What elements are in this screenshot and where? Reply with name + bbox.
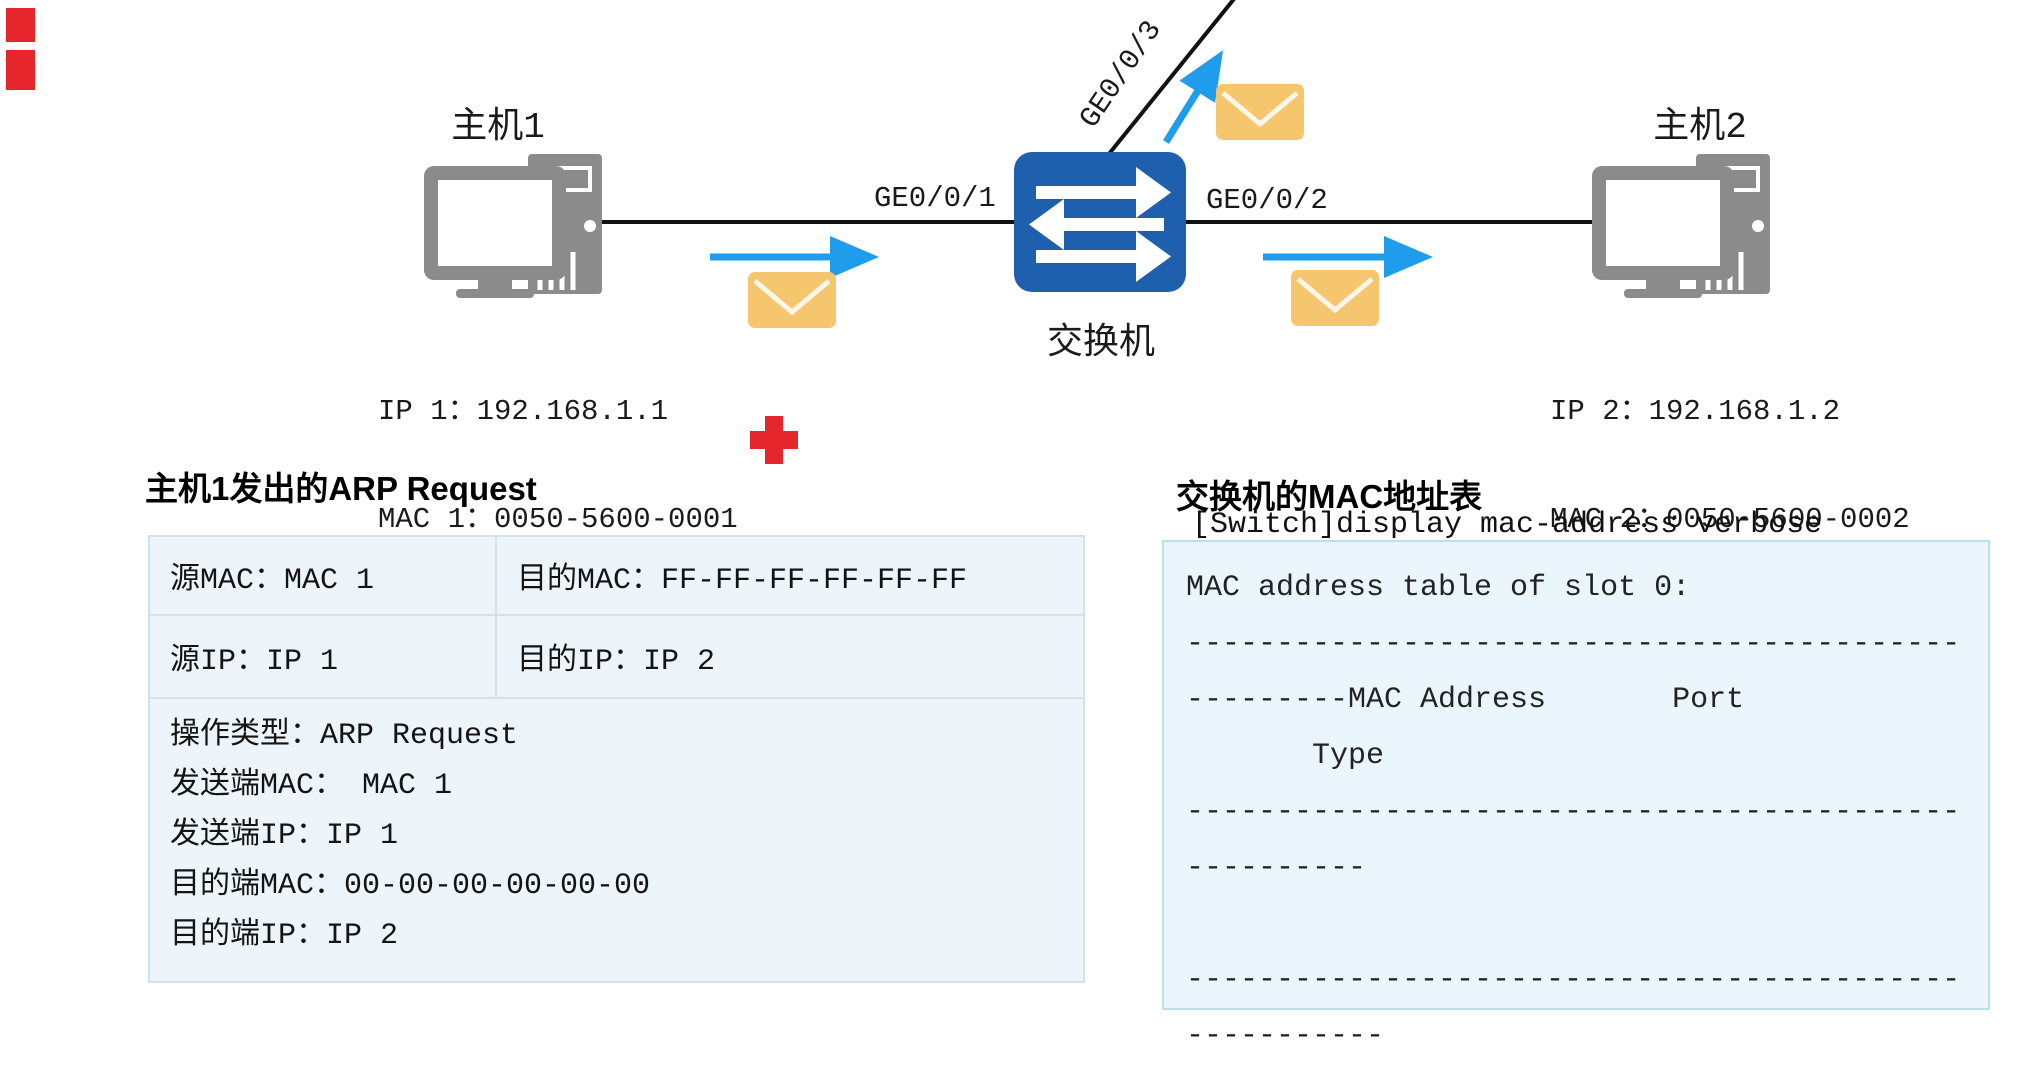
table-row: 源MAC：MAC 1 目的MAC：FF-FF-FF-FF-FF-FF [150,537,1083,616]
slide-canvas: 主机1 IP 1：192.168.1.1 MAC 1：0050-5600-000… [0,0,2032,1091]
red-plus-icon [750,416,798,464]
arp-detail-sender-ip: 发送端IP：IP 1 [170,811,1083,861]
console-line: ---------MAC Address Port [1186,672,2032,728]
arp-src-mac-cell: 源MAC：MAC 1 [150,537,497,614]
table-row: 源IP：IP 1 目的IP：IP 2 [150,616,1083,699]
host1-label: 主机1 [408,96,588,148]
arp-detail-sender-mac: 发送端MAC： MAC 1 [170,761,1083,811]
packet-envelope-right-icon [1291,270,1379,326]
switch-cli-command: [Switch]display mac-address verbose [1192,508,1822,542]
console-line: ----------------------------------------… [1186,784,2032,840]
host2-computer-icon [1592,152,1772,298]
console-line: MAC address table of slot 0: [1186,560,2032,616]
host2-ip: IP 2：192.168.1.2 [1550,394,1910,430]
packet-arrow-up-icon [1166,68,1212,142]
arp-section-title: 主机1发出的ARP Request [145,462,537,510]
console-line: Type [1186,728,2032,784]
port-label-ge001: GE0/0/1 [874,182,996,215]
arp-request-table: 源MAC：MAC 1 目的MAC：FF-FF-FF-FF-FF-FF 源IP：I… [148,535,1085,983]
mac-table-console-box: MAC address table of slot 0: -----------… [1162,540,1990,1010]
switch-label: 交换机 [1016,312,1186,364]
arp-dst-mac-cell: 目的MAC：FF-FF-FF-FF-FF-FF [497,537,1083,614]
host2-label: 主机2 [1610,96,1790,148]
host1-ip: IP 1：192.168.1.1 [378,394,738,430]
console-line [1186,896,2032,952]
mac-table-console-output: MAC address table of slot 0: -----------… [1186,560,2032,1064]
arp-detail-op-type: 操作类型：ARP Request [170,711,1083,761]
console-line: ----------------------------------------… [1186,952,2032,1008]
host1-computer-icon [424,152,604,298]
console-line: ---------- [1186,840,2032,896]
arp-src-ip-cell: 源IP：IP 1 [150,616,497,697]
arp-detail-target-ip: 目的端IP：IP 2 [170,911,1083,961]
console-line: ----------- [1186,1008,2032,1064]
arp-details-cell: 操作类型：ARP Request 发送端MAC： MAC 1 发送端IP：IP … [150,699,1083,981]
arp-dst-ip-cell: 目的IP：IP 2 [497,616,1083,697]
port-label-ge002: GE0/0/2 [1206,184,1328,217]
console-line: ----------------------------------------… [1186,616,2032,672]
packet-envelope-top-icon [1216,84,1304,140]
packet-envelope-left-icon [748,272,836,328]
arp-detail-target-mac: 目的端MAC：00-00-00-00-00-00 [170,861,1083,911]
switch-icon [1014,152,1186,292]
